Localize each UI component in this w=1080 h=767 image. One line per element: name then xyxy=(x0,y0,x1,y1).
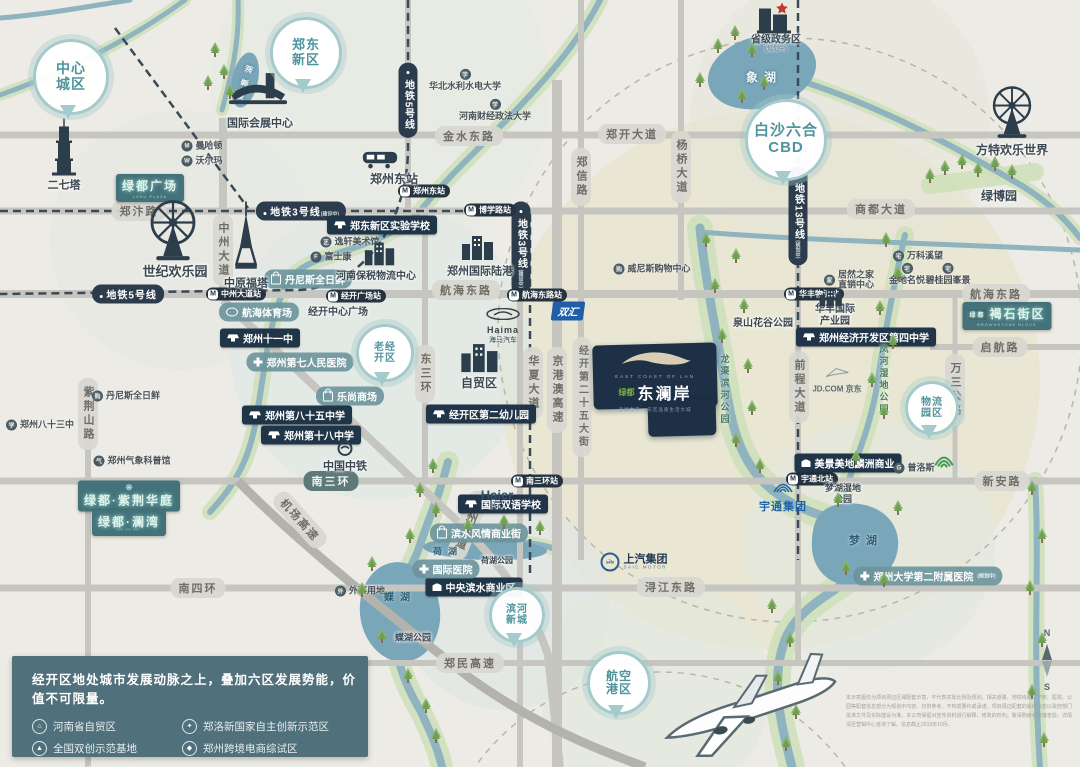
tree-icon xyxy=(893,266,904,286)
tree-icon xyxy=(377,628,388,648)
plane-icon xyxy=(643,642,860,767)
project-english: EAST COAST OF LAN xyxy=(593,374,717,379)
metro-dot-icon: ● xyxy=(405,70,412,78)
shopping-bag-icon xyxy=(323,391,333,401)
tree-icon xyxy=(881,232,892,252)
haier-logo: Haier海尔 xyxy=(481,488,514,513)
tree-icon xyxy=(403,668,414,688)
jd-logo: JD.COM 京东 xyxy=(812,366,861,395)
tree-icon xyxy=(791,704,802,724)
tree-icon xyxy=(428,458,439,478)
road-label: 京港澳高速 xyxy=(547,347,567,433)
place-label: 方特欢乐世界 xyxy=(976,143,1048,157)
metro-dot-icon: ● xyxy=(99,294,104,301)
saic-ring-icon: SAIC xyxy=(601,553,620,572)
yutong-arcs-icon xyxy=(772,481,794,493)
legend-item: ◆郑州跨境电商综试区 xyxy=(182,741,362,756)
legend-item-label: 全国双创示范基地 xyxy=(53,741,137,756)
tree-icon xyxy=(773,670,784,690)
place-label: 中原福塔 xyxy=(224,277,268,290)
metro-icon: M xyxy=(400,186,410,196)
pin-tail xyxy=(295,79,311,101)
tree-icon xyxy=(990,156,1001,176)
legend-item-label: 河南省自贸区 xyxy=(53,719,116,734)
legend-item: ▲全国双创示范基地 xyxy=(32,741,182,756)
road-label: 新安路 xyxy=(975,471,1030,491)
road-label: 郑开大道 xyxy=(598,124,666,144)
tree-icon xyxy=(739,298,750,318)
place-label: 河南保税物流中心 xyxy=(336,271,416,283)
lake-label: 荷湖 xyxy=(433,545,463,558)
tower-icon xyxy=(235,202,257,279)
pin-tail xyxy=(608,705,624,727)
tree-icon xyxy=(879,572,890,592)
legend-item: ⌂河南省自贸区 xyxy=(32,719,182,734)
metro-line-label: ●地铁3号线(建设中) xyxy=(512,202,531,295)
tree-icon xyxy=(463,518,474,538)
legend-item: ♣国家生态工业示范园区 xyxy=(32,763,182,767)
map-items-layer: 中心城区郑东新区白沙六合CBD老经开区滨河新城航空港区物流园区郑汴路金水东路郑开… xyxy=(0,0,1080,767)
comprehensive-bonded-zone-icon: ▣ xyxy=(182,763,197,767)
gov-icon xyxy=(755,1,795,40)
shopping-bag-icon xyxy=(437,528,447,538)
place-label: 中国中铁 xyxy=(323,460,367,473)
poi-label: 购威尼斯购物中心 xyxy=(613,264,690,275)
metro-dot-icon: ● xyxy=(263,211,268,218)
metro-station-badge: M南三环站 xyxy=(511,475,563,488)
tree-icon xyxy=(695,72,706,92)
tree-icon xyxy=(893,500,904,520)
road-label: 杨桥大道 xyxy=(671,131,691,203)
tree-icon xyxy=(421,698,432,718)
poi-label: G普洛斯 xyxy=(893,463,934,474)
saic-logo: SAIC上汽集团SAIC MOTOR xyxy=(601,553,668,572)
tree-icon xyxy=(743,358,754,378)
poi-badge: 郑州大学第二附属医院(规划中) xyxy=(853,567,1002,586)
shopping-bag-icon xyxy=(271,274,281,284)
road-label: 航海东路 xyxy=(962,284,1030,304)
poi-dot-icon: M xyxy=(181,141,192,152)
tree-icon xyxy=(755,458,766,478)
legend-item-label: 国家生态工业示范园区 xyxy=(53,763,158,767)
tree-icon xyxy=(973,162,984,182)
commerce-icon xyxy=(433,583,442,591)
poi-dot-icon: 外 xyxy=(335,586,346,597)
area-pin: 白沙六合CBD xyxy=(745,99,821,175)
metro-icon: M xyxy=(466,205,476,215)
poi-dot-icon: 宅 xyxy=(893,251,904,262)
legend-item-label: 郑洛新国家自主创新示范区 xyxy=(203,719,329,734)
compass-icon: N S xyxy=(1042,628,1052,692)
poi-badge: 滨水风情商业街 xyxy=(430,524,528,543)
ferris-icon xyxy=(145,197,201,266)
poi-dot-icon: 学 xyxy=(6,420,17,431)
poi-label: 气郑州气象科普馆 xyxy=(93,456,170,467)
road-label: 航海东路 xyxy=(432,280,500,300)
tree-icon xyxy=(759,75,770,95)
legend-title: 经开区地处城市发展动脉之上，叠加六区发展势能，价值不可限量。 xyxy=(12,656,368,707)
poi-label: 宅万科溪望 xyxy=(893,251,943,262)
metro-icon: M xyxy=(513,476,523,486)
swirl-icon xyxy=(933,452,955,475)
tree-icon xyxy=(713,38,724,58)
metro-station-badge: M经开广场站 xyxy=(326,290,386,303)
road-label: 紫荆山路 xyxy=(78,378,98,450)
area-pin: 中心城区 xyxy=(33,39,103,109)
poi-label: 学河南财经政法大学 xyxy=(459,99,531,121)
tree-icon xyxy=(747,400,758,420)
place-label: 泉山花谷公园 xyxy=(733,318,793,330)
area-pin: 航空港区 xyxy=(587,651,645,709)
poi-dot-icon: 宅 xyxy=(942,263,953,274)
bldg-icon xyxy=(363,241,397,272)
poi-label: 学华北水利水电大学 xyxy=(429,69,501,91)
poi-badge: 经开区第二幼儿园 xyxy=(426,405,536,424)
road-label: 金水东路 xyxy=(435,126,503,146)
legend-items: ⌂河南省自贸区✦郑洛新国家自主创新示范区▲全国双创示范基地◆郑州跨境电商综试区♣… xyxy=(32,715,368,767)
legend-item: ✦郑洛新国家自主创新示范区 xyxy=(182,719,362,734)
tree-icon xyxy=(1027,480,1038,500)
lvdu-project-badge: 绿都褐石街区BROWNSTONE BLOCK xyxy=(962,302,1051,330)
compass-north: N xyxy=(1042,628,1052,638)
shuanghui-logo: 双汇 xyxy=(552,302,584,321)
poi-badge: 郑州十一中 xyxy=(220,329,300,348)
metro-icon: M xyxy=(786,289,796,299)
tree-icon xyxy=(405,528,416,548)
pin-tail xyxy=(60,105,76,127)
place-label: 郑州国际陆港 xyxy=(447,265,513,278)
area-pin: 老经开区 xyxy=(356,324,408,376)
poi-dot-icon: F xyxy=(310,252,321,263)
commerce-icon xyxy=(802,459,811,467)
poi-label: F富士康 xyxy=(310,252,351,263)
area-pin: 物流园区 xyxy=(905,381,953,429)
lvdu-project-badge: 绿都·澜湾〰〰〰 xyxy=(92,510,166,536)
school-icon xyxy=(433,410,445,419)
poi-dot-icon: 气 xyxy=(93,456,104,467)
haima-logo: Haima海马汽车 xyxy=(486,307,520,345)
project-logo-swoosh-icon xyxy=(615,348,695,368)
tree-icon xyxy=(875,300,886,320)
lake-label: 蝶湖 xyxy=(384,589,416,604)
road-label: 郑信路 xyxy=(571,148,591,206)
tree-icon xyxy=(710,278,721,298)
poi-badge: 郑州第七人民医院 xyxy=(247,353,354,372)
poi-badge: 郑东新区实验学校 xyxy=(327,216,437,235)
yutong-logo: 宇通集团 xyxy=(759,480,807,514)
poi-dot-icon: 家 xyxy=(824,275,835,286)
tree-icon xyxy=(867,372,878,392)
area-pin: 滨河新城 xyxy=(489,587,539,637)
tree-icon xyxy=(203,75,214,95)
tree-icon xyxy=(731,432,742,452)
area-pin: 郑东新区 xyxy=(270,17,336,83)
tree-icon xyxy=(431,728,442,748)
poi-label: M曼哈顿 xyxy=(181,141,222,152)
road-label: 前程大道 xyxy=(789,351,809,423)
compass-needle xyxy=(1042,639,1052,660)
project-tagline: 滨湖秀岸 · 东区品质生活大城 xyxy=(593,407,717,413)
bldg-icon xyxy=(818,288,844,313)
ferris-icon xyxy=(988,84,1036,144)
stadium-icon xyxy=(226,308,238,317)
poi-badge: 航海体育场 xyxy=(219,303,299,322)
lvdu-project-badge: ❋绿都·紫荆华庭 xyxy=(78,481,180,512)
metro-icon: M xyxy=(208,289,218,299)
tree-icon xyxy=(1039,732,1050,752)
legend-item-label: 郑州跨境电商综试区 xyxy=(203,741,298,756)
road-label: 郑民高速 xyxy=(436,653,504,673)
legend-panel: 经开区地处城市发展动脉之上，叠加六区发展势能，价值不可限量。 ⌂河南省自贸区✦郑… xyxy=(12,656,368,757)
poi-dot-icon: 学 xyxy=(489,99,500,110)
place-label: 蝶湖公园 xyxy=(395,633,431,644)
road-label: 浔江东路 xyxy=(637,577,705,597)
tree-icon xyxy=(785,632,796,652)
school-icon xyxy=(465,500,477,509)
hospital-cross-icon xyxy=(254,358,263,367)
poi-label: W沃尔玛 xyxy=(181,156,222,167)
poi-dot-icon: 学 xyxy=(459,69,470,80)
tree-icon xyxy=(357,582,368,602)
tree-icon xyxy=(925,168,936,188)
place-label: 经开中心广场 xyxy=(308,307,368,319)
school-icon xyxy=(249,411,261,420)
pin-tail xyxy=(921,425,937,447)
school-icon xyxy=(268,431,280,440)
tree-icon xyxy=(225,84,236,104)
tree-icon xyxy=(940,160,951,180)
tree-icon xyxy=(701,232,712,252)
pin-tail xyxy=(374,372,390,394)
tower2-icon xyxy=(51,119,77,182)
tree-icon xyxy=(210,42,221,62)
cross-border-ecommerce-icon: ◆ xyxy=(182,741,197,756)
school-icon xyxy=(227,334,239,343)
place-label: 绿博园 xyxy=(981,189,1017,203)
poi-badge: 国际医院 xyxy=(413,560,480,579)
metro-line-label: ●地铁13号线(规划中) xyxy=(789,166,808,265)
metro-station-badge: M博学路站 xyxy=(464,204,516,217)
poi-badge: 郑州经济开发区第四中学 xyxy=(796,328,936,347)
tree-icon xyxy=(730,25,741,45)
road-label: 南四环 xyxy=(171,578,226,598)
metro-dot-icon: ● xyxy=(518,209,525,217)
place-label: 荷湖公园 xyxy=(481,556,513,566)
compass-south: S xyxy=(1042,682,1052,692)
circ-icon xyxy=(337,441,353,462)
metro-station-badge: M郑州东站 xyxy=(398,185,450,198)
free-trade-zone-icon: ⌂ xyxy=(32,719,47,734)
eco-industry-icon: ♣ xyxy=(32,763,47,767)
road-label: 南三环 xyxy=(304,471,359,491)
disclaimer: 本示意图仅为项目周边区域配套示意，不代表实际比例及规划，相关道路、地铁线路、学校… xyxy=(846,694,1072,730)
map-canvas: 中心城区郑东新区白沙六合CBD老经开区滨河新城航空港区物流园区郑汴路金水东路郑开… xyxy=(0,0,1080,767)
poi-label: 购丹尼斯全日鲜 xyxy=(92,391,160,402)
road-label: 中州大道 xyxy=(213,214,233,286)
road-label: 东三环 xyxy=(415,345,435,403)
metro-station-badge: M航海东路站 xyxy=(507,289,567,302)
pin-tail xyxy=(775,171,791,193)
tree-icon xyxy=(535,520,546,540)
place-label: 国际会展中心 xyxy=(227,117,293,130)
legend-item-label: 郑州经开综合保税区 xyxy=(203,763,298,767)
poi-label: 学郑州八十三中 xyxy=(6,420,74,431)
road-label: 启航路 xyxy=(973,337,1028,357)
poi-label: 宅碧桂园峯景 xyxy=(925,263,970,285)
poi-badge: 郑州第八十五中学 xyxy=(242,406,352,425)
metro-icon: M xyxy=(509,290,519,300)
tree-icon xyxy=(747,42,758,62)
poi-dot-icon: G xyxy=(893,463,904,474)
tree-icon xyxy=(879,404,890,424)
haima-emblem-icon xyxy=(486,308,520,320)
tree-icon xyxy=(957,154,968,174)
tree-icon xyxy=(431,502,442,522)
poi-badge: 美景美地麟洲商业 xyxy=(795,454,902,473)
metro-line-label: ●地铁5号线 xyxy=(399,63,418,138)
school-icon xyxy=(334,221,346,230)
tree-icon xyxy=(499,514,510,534)
jd-sketch-icon xyxy=(824,367,850,379)
innovation-base-icon: ▲ xyxy=(32,741,47,756)
poi-dot-icon: 购 xyxy=(92,391,103,402)
project-badge: EAST COAST OF LAN 绿都东澜岸 滨湖秀岸 · 东区品质生活大城 xyxy=(593,344,717,413)
hospital-cross-icon xyxy=(860,572,869,581)
road-label: 商都大道 xyxy=(847,199,915,219)
bldg-icon xyxy=(460,234,496,266)
park-label: 龙渠滨河公园 xyxy=(719,354,732,426)
project-brand: 绿都 xyxy=(618,388,634,397)
project-name: 东澜岸 xyxy=(637,386,691,403)
tree-icon xyxy=(1007,164,1018,184)
poi-dot-icon: 艺 xyxy=(320,237,331,248)
tree-icon xyxy=(717,328,728,348)
tree-icon xyxy=(833,492,844,512)
tree-icon xyxy=(367,556,378,576)
tree-icon xyxy=(731,248,742,268)
tree-icon xyxy=(781,736,792,756)
lake-label: 梦湖 xyxy=(849,532,883,548)
legend-item: ▣郑州经开综合保税区 xyxy=(182,763,362,767)
metro-icon: M xyxy=(328,291,338,301)
road-label: 机场高速 xyxy=(270,488,330,552)
independent-innovation-icon: ✦ xyxy=(182,719,197,734)
tree-icon xyxy=(1037,528,1048,548)
tree-icon xyxy=(219,64,230,84)
poi-dot-icon: W xyxy=(181,156,192,167)
school-icon xyxy=(803,333,815,342)
road-label: 经开第二十五大街 xyxy=(573,337,592,457)
metro-line-label: ●地铁5号线 xyxy=(92,285,164,304)
tree-icon xyxy=(767,598,778,618)
hospital-cross-icon xyxy=(420,565,429,574)
tree-icon xyxy=(851,450,862,470)
tree-icon xyxy=(1025,580,1036,600)
train-icon xyxy=(361,150,399,174)
pin-tail xyxy=(506,633,522,655)
bldg-icon xyxy=(459,342,501,379)
lvdu-logo-icon: ❋ xyxy=(84,484,174,492)
tree-icon xyxy=(841,560,852,580)
tree-icon xyxy=(888,334,899,354)
compass-needle xyxy=(1042,661,1052,682)
tree-icon xyxy=(415,482,426,502)
poi-dot-icon: 购 xyxy=(613,264,624,275)
